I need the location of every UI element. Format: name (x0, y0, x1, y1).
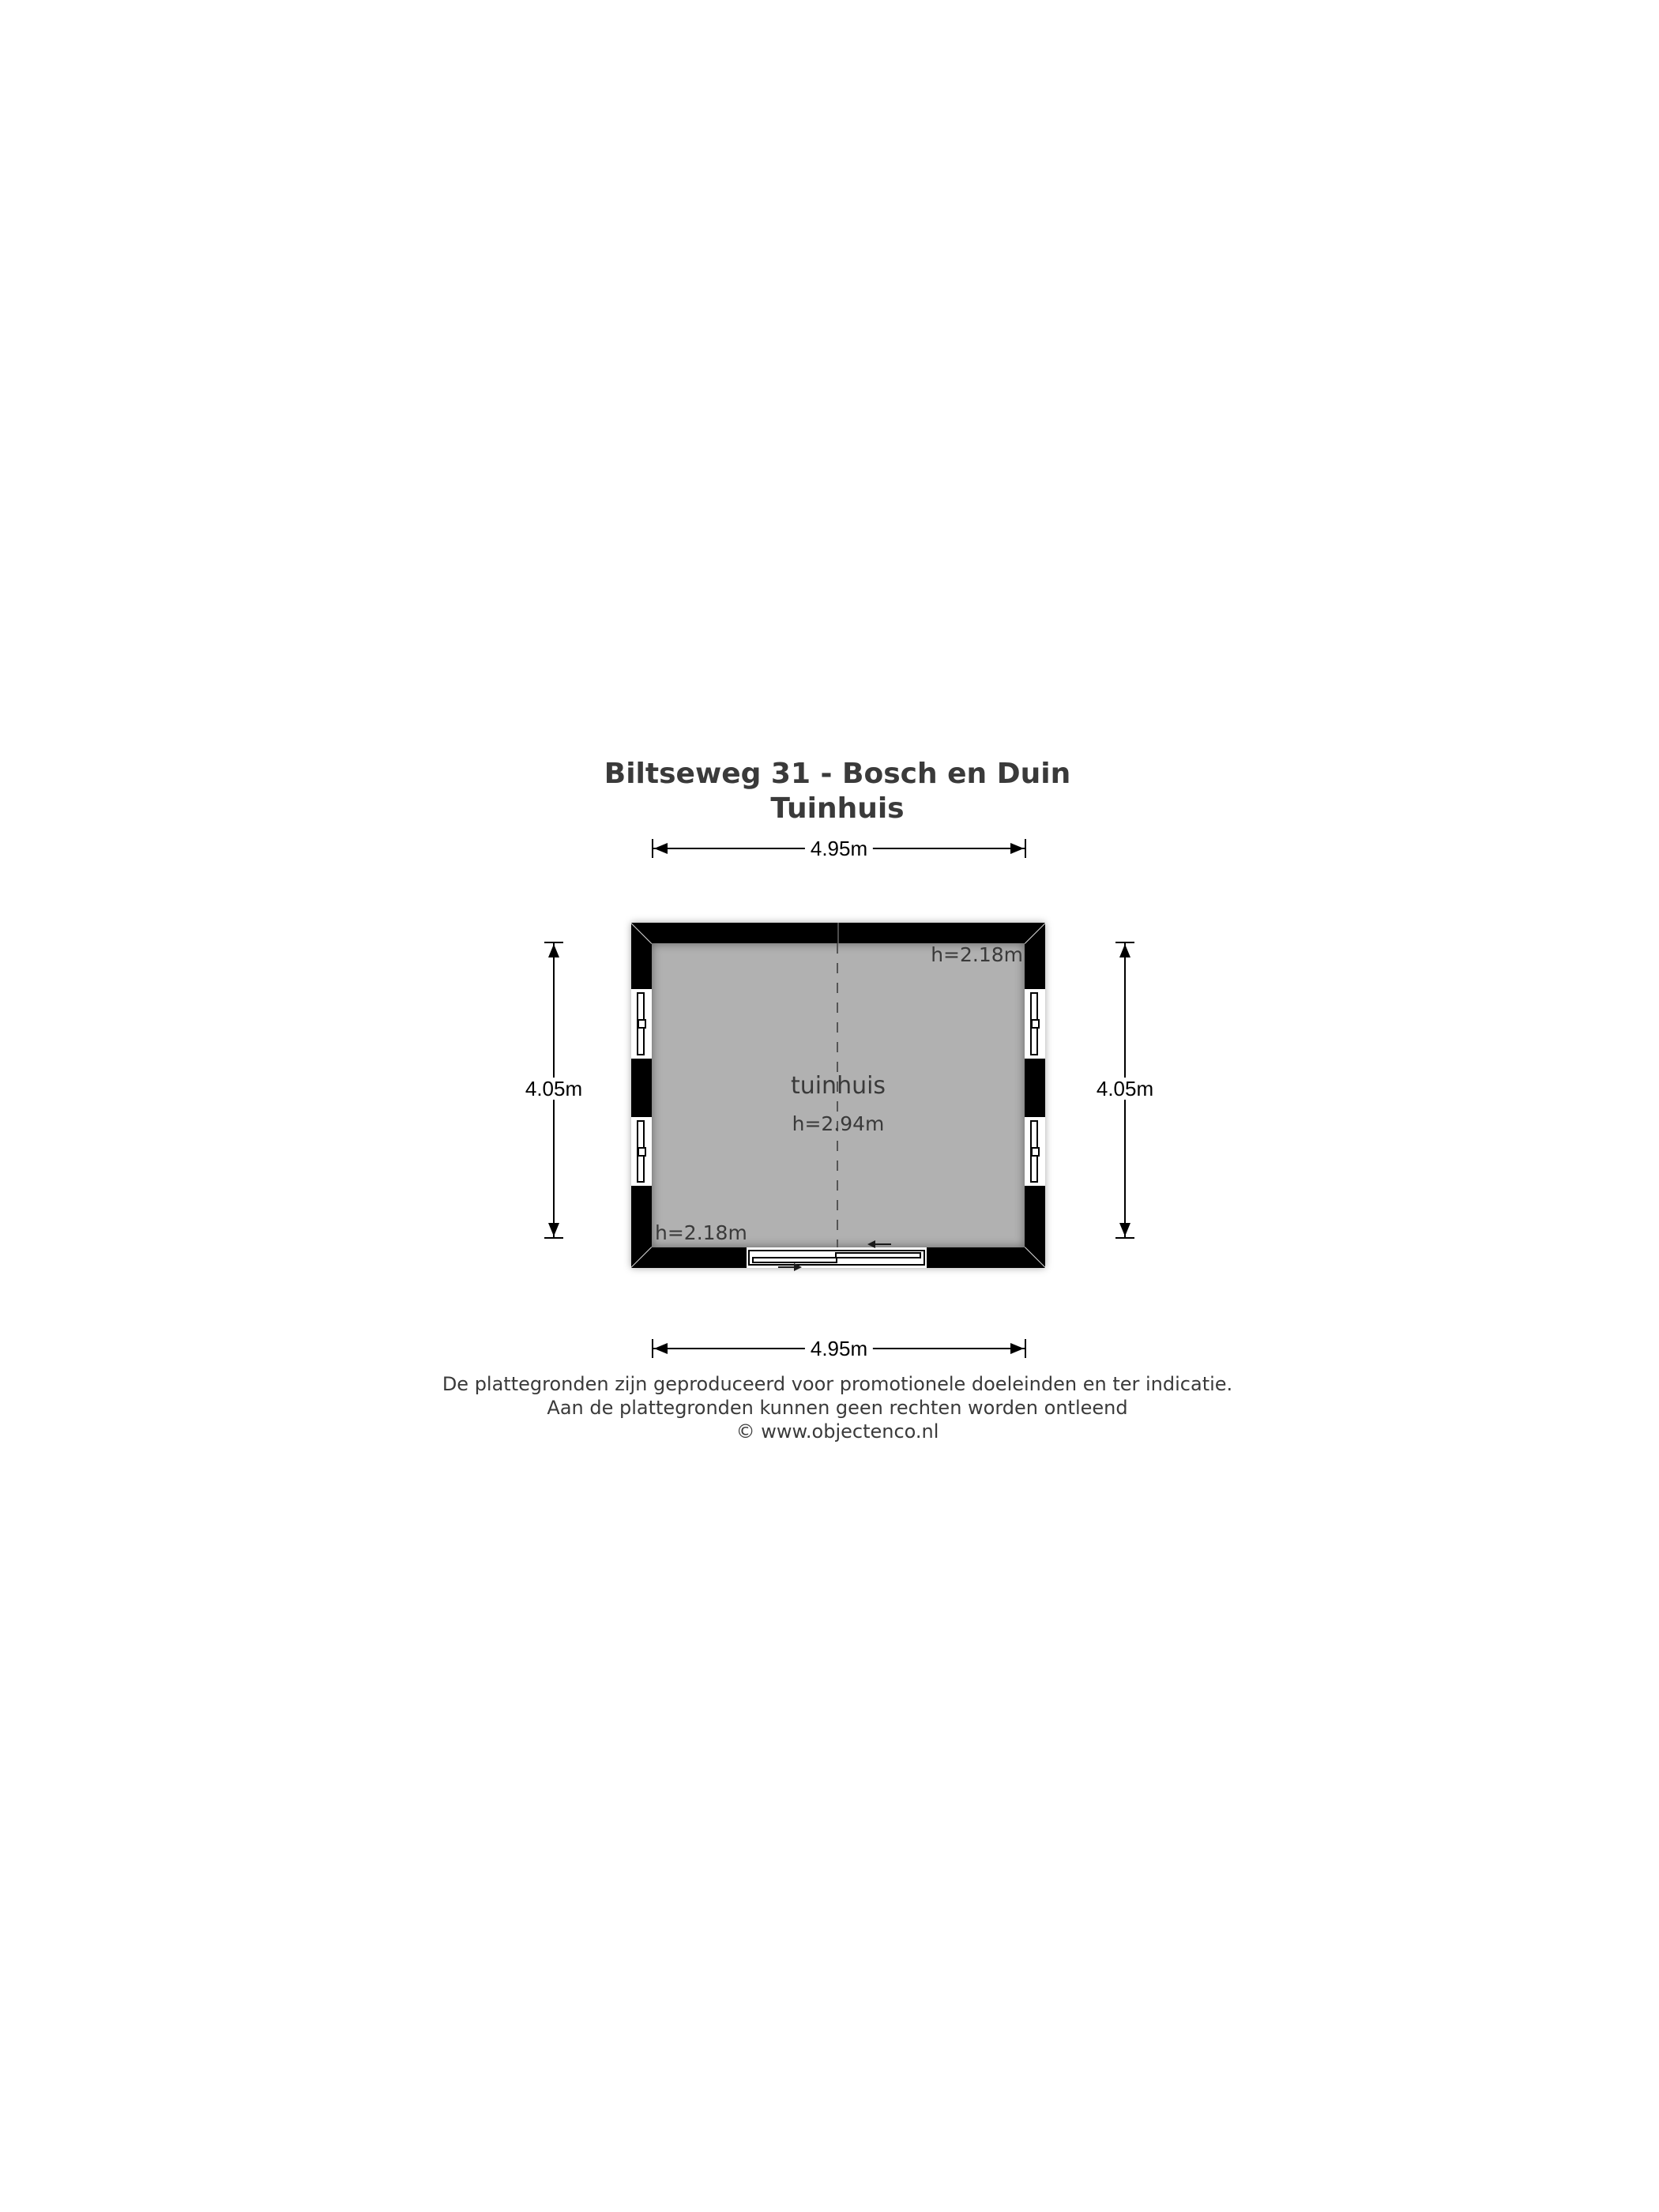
dimension-bottom: 4.95m (652, 1337, 1026, 1360)
dimension-end-bar (1115, 942, 1134, 943)
arrow-left-icon (654, 843, 668, 854)
arrow-up-icon (1119, 944, 1130, 957)
door-slide-arrow-right-icon (778, 1263, 802, 1271)
dimension-end-bar (1025, 1339, 1026, 1358)
corner-miter-line (630, 923, 652, 944)
door-panel-left (752, 1257, 837, 1263)
window-handle (1031, 1147, 1040, 1157)
sliding-door (747, 1247, 927, 1268)
dimension-end-bar (652, 1339, 653, 1358)
footer-line: De plattegronden zijn geproduceerd voor … (16, 1372, 1659, 1396)
dimension-right: 4.05m (1114, 942, 1136, 1239)
floorplan-drawing: tuinhuis h=2.94m h=2.18m h=2.18m (631, 923, 1045, 1268)
dimension-end-bar (544, 942, 563, 943)
corner-miter-line (1025, 923, 1046, 944)
dimension-bottom-label: 4.95m (805, 1337, 873, 1360)
arrow-down-icon (548, 1223, 559, 1236)
dimension-left-label: 4.05m (520, 1078, 588, 1100)
door-panel-right (835, 1252, 921, 1258)
wall-seam-line (837, 923, 839, 943)
arrow-up-icon (548, 944, 559, 957)
title-subtitle: Tuinhuis (16, 792, 1659, 826)
page-title: Biltseweg 31 - Bosch en Duin Tuinhuis (16, 757, 1659, 826)
corner-miter-line (1025, 1247, 1046, 1268)
dimension-left: 4.05m (543, 942, 565, 1239)
window-handle (638, 1147, 646, 1157)
corner-miter-line (630, 1247, 652, 1268)
floorplan-page: Biltseweg 31 - Bosch en Duin Tuinhuis 4.… (0, 0, 1659, 2212)
dimension-end-bar (1115, 1237, 1134, 1239)
window-handle (1031, 1019, 1040, 1029)
arrow-down-icon (1119, 1223, 1130, 1236)
window-left-top (631, 987, 652, 1060)
dimension-right-label: 4.05m (1091, 1078, 1159, 1100)
arrow-right-icon (1010, 1343, 1024, 1354)
window-right-top (1025, 987, 1045, 1060)
footer-copyright: © www.objectenco.nl (16, 1420, 1659, 1443)
dimension-end-bar (1025, 839, 1026, 858)
dimension-top-label: 4.95m (805, 837, 873, 860)
arrow-right-icon (1010, 843, 1024, 854)
footer-line: Aan de plattegronden kunnen geen rechten… (16, 1396, 1659, 1420)
dimension-end-bar (544, 1237, 563, 1239)
ceiling-height-bottom-left-label: h=2.18m (655, 1221, 747, 1245)
footer-disclaimer: De plattegronden zijn geproduceerd voor … (16, 1372, 1659, 1443)
window-handle (638, 1019, 646, 1029)
dimension-end-bar (652, 839, 653, 858)
ceiling-height-top-right-label: h=2.18m (931, 943, 1023, 967)
door-slide-arrow-left-icon (867, 1240, 891, 1248)
title-address: Biltseweg 31 - Bosch en Duin (16, 757, 1659, 792)
arrow-left-icon (654, 1343, 668, 1354)
room-label: tuinhuis (631, 1071, 1045, 1101)
dimension-top: 4.95m (652, 837, 1026, 860)
room-ceiling-height-label: h=2.94m (631, 1112, 1045, 1136)
